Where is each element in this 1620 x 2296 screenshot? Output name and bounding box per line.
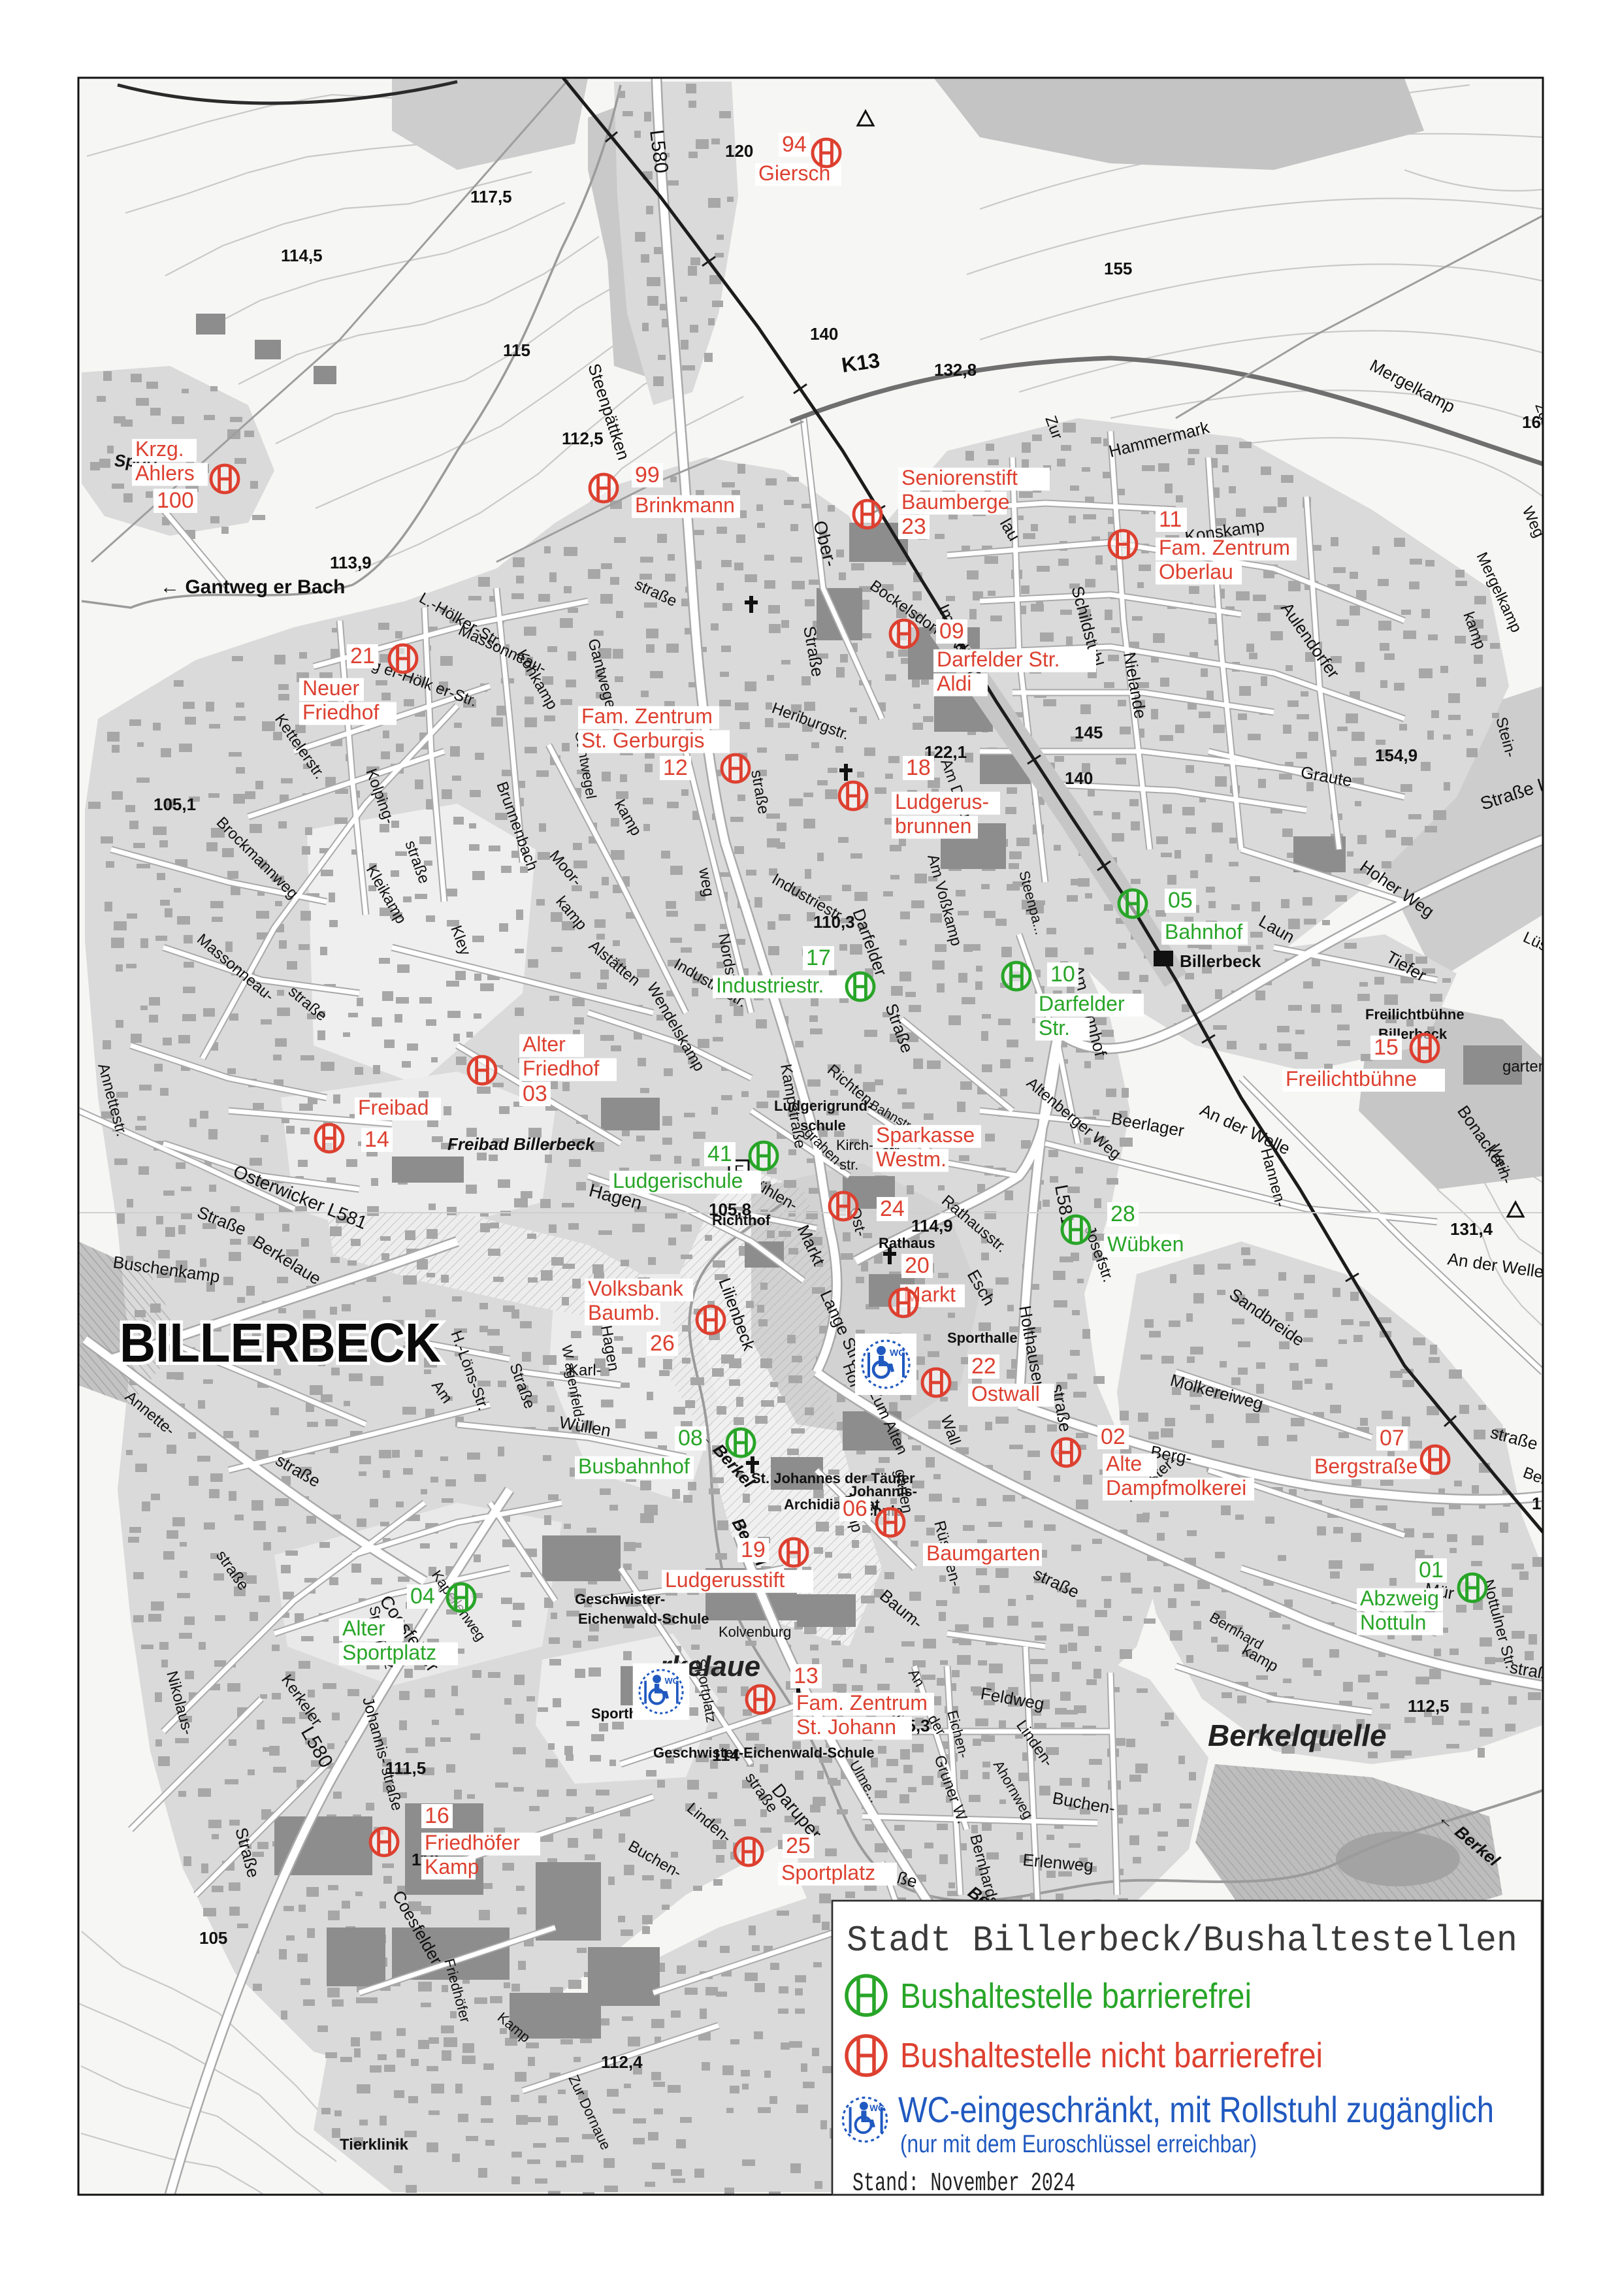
- svg-text:Stadt Billerbeck/Bushaltestell: Stadt Billerbeck/Bushaltestellen: [847, 1920, 1517, 1961]
- svg-text:Ludgerischule: Ludgerischule: [613, 1169, 743, 1192]
- svg-text:Rathaus: Rathaus: [879, 1235, 935, 1251]
- svg-text:Bahnhof: Bahnhof: [1165, 920, 1242, 943]
- svg-text:WC-eingeschränkt, mit Rollstuh: WC-eingeschränkt, mit Rollstuhl zugängli…: [898, 2089, 1494, 2130]
- svg-text:Westm.: Westm.: [876, 1147, 947, 1171]
- svg-text:08: 08: [678, 1426, 703, 1451]
- svg-text:Baumb.: Baumb.: [588, 1301, 660, 1324]
- svg-text:100: 100: [157, 488, 194, 513]
- svg-text:22: 22: [971, 1354, 996, 1379]
- svg-text:Darfelder: Darfelder: [1039, 992, 1125, 1015]
- svg-text:Baumgarten: Baumgarten: [926, 1541, 1040, 1565]
- svg-text:94: 94: [782, 132, 807, 157]
- svg-text:Sparkasse: Sparkasse: [876, 1123, 975, 1147]
- svg-text:St. Johann: St. Johann: [796, 1715, 896, 1739]
- svg-text:99: 99: [635, 463, 660, 487]
- svg-text:brunnen: brunnen: [895, 814, 971, 838]
- svg-text:Bergstraße: Bergstraße: [1314, 1454, 1417, 1478]
- svg-text:Billerbeck: Billerbeck: [1180, 951, 1261, 971]
- svg-text:St. Gerburgis: St. Gerburgis: [581, 729, 705, 752]
- svg-text:105,1: 105,1: [154, 795, 196, 814]
- svg-text:145: 145: [1075, 723, 1103, 742]
- svg-text:BILLERBECK: BILLERBECK: [120, 1312, 441, 1373]
- svg-text:Kamp: Kamp: [425, 1855, 479, 1878]
- svg-text:10: 10: [1050, 962, 1075, 987]
- svg-text:Kolvenburg: Kolvenburg: [719, 1624, 791, 1640]
- svg-text:120: 120: [725, 141, 753, 161]
- svg-text:Wübken: Wübken: [1107, 1232, 1184, 1256]
- svg-text:Freibad: Freibad: [358, 1096, 429, 1119]
- svg-text:14: 14: [364, 1127, 389, 1152]
- svg-text:Sportplatz: Sportplatz: [342, 1641, 436, 1664]
- svg-text:23: 23: [901, 514, 926, 539]
- svg-text:Alter: Alter: [342, 1616, 385, 1640]
- svg-text:Str.: Str.: [1039, 1016, 1070, 1040]
- svg-text:Sportplatz: Sportplatz: [781, 1861, 875, 1884]
- svg-text:Volksbank: Volksbank: [588, 1277, 684, 1300]
- svg-text:garten: garten: [1502, 1058, 1547, 1075]
- svg-text:← Gantweg er Bach: ← Gantweg er Bach: [160, 576, 345, 598]
- svg-text:17: 17: [806, 945, 831, 970]
- svg-text:Industriestr.: Industriestr.: [716, 974, 824, 997]
- svg-text:06: 06: [843, 1496, 867, 1521]
- svg-text:Freilichtbühne: Freilichtbühne: [1286, 1067, 1417, 1091]
- svg-text:01: 01: [1419, 1558, 1444, 1583]
- svg-text:Aldi: Aldi: [937, 672, 971, 695]
- svg-text:115: 115: [503, 340, 530, 360]
- svg-text:16: 16: [425, 1803, 449, 1828]
- svg-text:Fam. Zentrum: Fam. Zentrum: [581, 704, 713, 728]
- svg-text:132,8: 132,8: [934, 360, 977, 380]
- svg-text:114,5: 114,5: [281, 246, 323, 265]
- svg-text:05: 05: [1168, 888, 1193, 913]
- svg-text:13: 13: [794, 1664, 818, 1688]
- svg-text:Bushaltestelle nicht barrieref: Bushaltestelle nicht barrierefrei: [900, 2036, 1323, 2075]
- svg-text:Seniorenstift: Seniorenstift: [901, 466, 1018, 489]
- svg-text:131,4: 131,4: [1450, 1219, 1493, 1239]
- svg-text:Fam. Zentrum: Fam. Zentrum: [796, 1691, 928, 1714]
- svg-text:Sporthalle: Sporthalle: [947, 1330, 1018, 1346]
- svg-text:07: 07: [1380, 1426, 1404, 1451]
- svg-text:Ostwall: Ostwall: [971, 1382, 1040, 1405]
- svg-text:Ahlers: Ahlers: [135, 461, 195, 485]
- svg-text:Krzg.: Krzg.: [135, 437, 184, 461]
- svg-text:112,4: 112,4: [601, 2052, 643, 2072]
- svg-text:114,9: 114,9: [911, 1216, 953, 1236]
- svg-text:Friedhöfer: Friedhöfer: [425, 1831, 520, 1854]
- svg-text:Ludgerigrund-: Ludgerigrund-: [774, 1098, 872, 1114]
- svg-text:112,5: 112,5: [562, 429, 604, 448]
- svg-text:140: 140: [810, 324, 838, 344]
- svg-text:04: 04: [410, 1584, 435, 1609]
- svg-text:Berkelquelle: Berkelquelle: [1208, 1718, 1387, 1752]
- svg-text:Eichenwald-Schule: Eichenwald-Schule: [578, 1611, 709, 1627]
- svg-text:Geschwister-Eichenwald-Schule: Geschwister-Eichenwald-Schule: [653, 1745, 875, 1761]
- svg-text:41: 41: [707, 1141, 732, 1166]
- svg-text:25: 25: [786, 1833, 811, 1858]
- svg-text:Abzweig: Abzweig: [1360, 1586, 1439, 1610]
- svg-text:str.: str.: [839, 1156, 858, 1173]
- svg-text:140: 140: [1065, 768, 1093, 788]
- svg-text:Freilichtbühne: Freilichtbühne: [1365, 1006, 1465, 1023]
- svg-text:WC: WC: [869, 2103, 884, 2113]
- svg-text:Darfelder Str.: Darfelder Str.: [937, 648, 1060, 671]
- svg-text:110,3: 110,3: [813, 912, 855, 932]
- svg-text:21: 21: [350, 644, 375, 668]
- svg-text:112,5: 112,5: [1408, 1696, 1450, 1716]
- svg-text:Freibad Billerbeck: Freibad Billerbeck: [447, 1134, 596, 1154]
- svg-text:Busbahnhof: Busbahnhof: [578, 1454, 690, 1478]
- svg-text:02: 02: [1101, 1424, 1126, 1449]
- svg-text:schule: schule: [800, 1117, 846, 1134]
- svg-text:15: 15: [1374, 1035, 1399, 1060]
- svg-text:Friedhof: Friedhof: [302, 700, 380, 724]
- svg-text:20: 20: [905, 1253, 930, 1278]
- svg-text:Oberlau: Oberlau: [1159, 560, 1233, 583]
- svg-text:154,9: 154,9: [1375, 746, 1417, 765]
- svg-text:Friedhof: Friedhof: [523, 1057, 600, 1080]
- svg-text:03: 03: [523, 1081, 547, 1106]
- svg-text:12: 12: [663, 755, 688, 780]
- svg-text:105,8: 105,8: [709, 1200, 751, 1219]
- svg-text:Nottuln: Nottuln: [1360, 1611, 1426, 1634]
- svg-text:28: 28: [1110, 1202, 1135, 1226]
- svg-text:Dampfmolkerei: Dampfmolkerei: [1106, 1476, 1246, 1500]
- svg-text:WC: WC: [665, 1676, 679, 1686]
- svg-text:Karl-: Karl-: [568, 1362, 602, 1379]
- svg-text:Ludgerusstift: Ludgerusstift: [665, 1568, 785, 1592]
- svg-text:155: 155: [1104, 259, 1132, 278]
- svg-text:Alte: Alte: [1106, 1452, 1142, 1475]
- svg-text:Stand: November 2024: Stand: November 2024: [852, 2169, 1075, 2199]
- svg-text:24: 24: [880, 1196, 905, 1221]
- svg-text:(nur mit dem Euroschlüssel err: (nur mit dem Euroschlüssel erreichbar): [900, 2131, 1257, 2158]
- svg-text:117,5: 117,5: [470, 187, 512, 206]
- svg-text:11: 11: [1159, 507, 1182, 532]
- svg-text:114: 114: [712, 1745, 739, 1765]
- svg-text:Bushaltestelle barrierefrei: Bushaltestelle barrierefrei: [900, 1976, 1252, 2016]
- svg-text:Kirch-: Kirch-: [836, 1137, 873, 1153]
- svg-text:Ludgerus-: Ludgerus-: [895, 790, 989, 813]
- svg-text:18: 18: [906, 755, 931, 780]
- svg-text:Geschwister-: Geschwister-: [575, 1591, 665, 1607]
- svg-text:09: 09: [939, 619, 964, 644]
- svg-text:Neuer: Neuer: [302, 676, 360, 700]
- svg-text:111,5: 111,5: [385, 1758, 426, 1778]
- svg-text:26: 26: [650, 1331, 675, 1356]
- svg-text:WC: WC: [890, 1347, 905, 1358]
- svg-text:Fam. Zentrum: Fam. Zentrum: [1159, 536, 1290, 559]
- svg-text:Alter: Alter: [523, 1032, 566, 1056]
- svg-text:Brinkmann: Brinkmann: [635, 493, 735, 517]
- svg-text:19: 19: [741, 1537, 766, 1562]
- svg-text:Tierklinik: Tierklinik: [340, 2136, 409, 2154]
- svg-text:113,9: 113,9: [330, 553, 372, 572]
- svg-text:Baumberge: Baumberge: [901, 490, 1009, 514]
- svg-text:105: 105: [199, 1928, 227, 1948]
